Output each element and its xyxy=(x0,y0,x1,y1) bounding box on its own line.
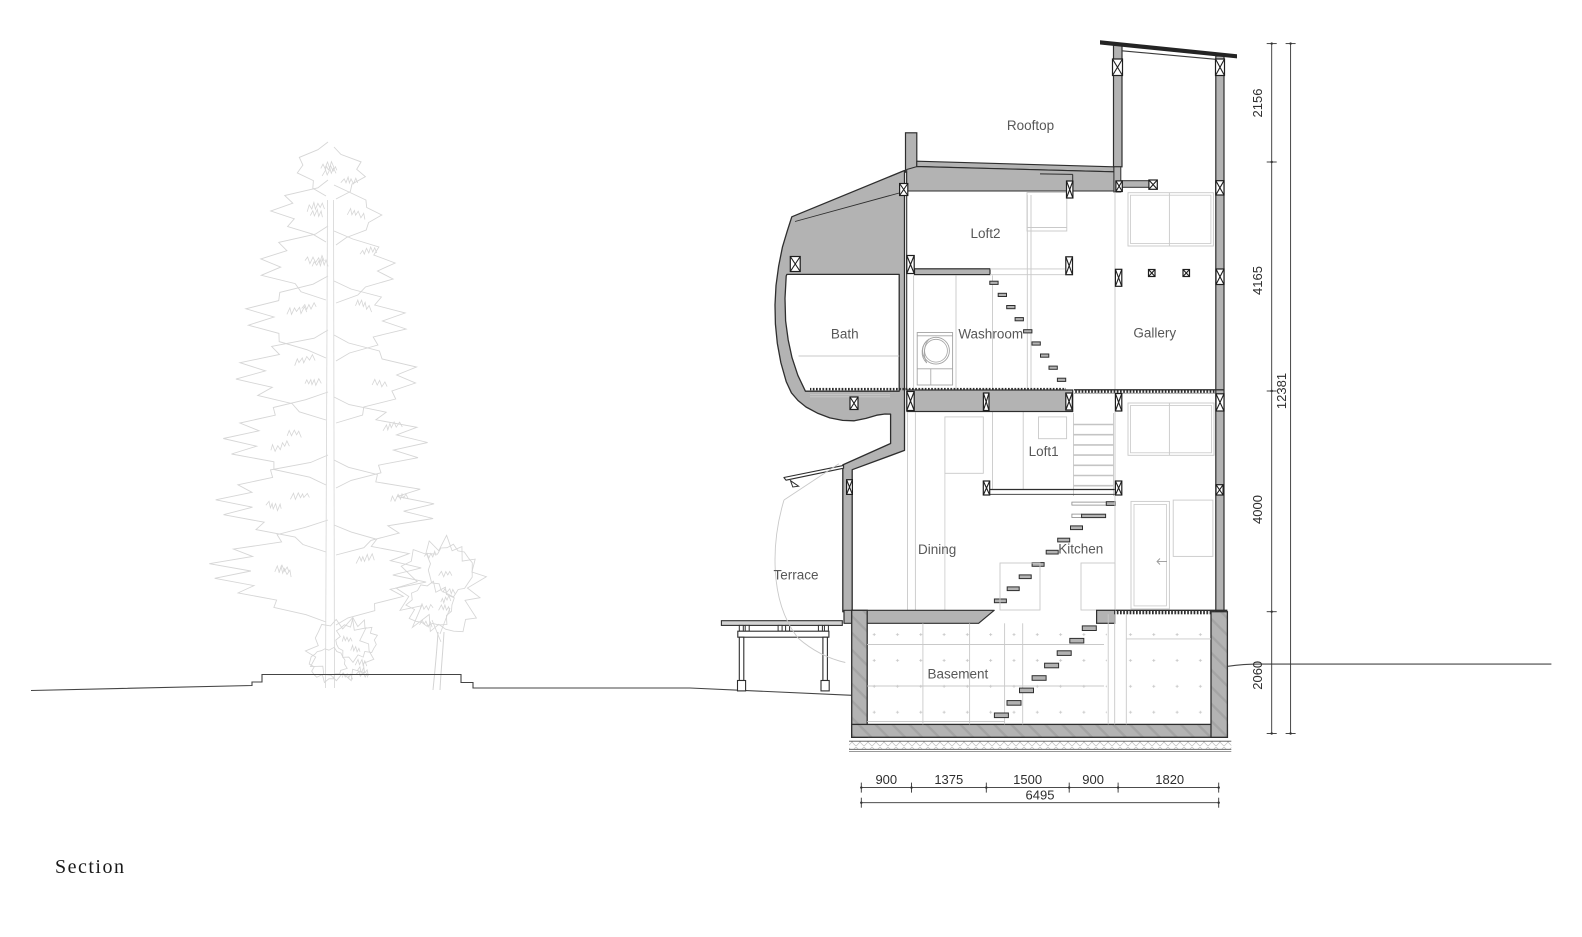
svg-text:1375: 1375 xyxy=(934,772,963,787)
svg-text:4165: 4165 xyxy=(1250,266,1265,295)
svg-text:Loft2: Loft2 xyxy=(970,226,1000,241)
svg-text:Kitchen: Kitchen xyxy=(1058,542,1103,557)
svg-text:Gallery: Gallery xyxy=(1133,325,1176,340)
svg-text:Bath: Bath xyxy=(831,327,859,342)
svg-text:900: 900 xyxy=(875,772,897,787)
svg-text:2156: 2156 xyxy=(1250,89,1265,118)
svg-text:Rooftop: Rooftop xyxy=(1007,118,1054,133)
svg-text:900: 900 xyxy=(1082,772,1104,787)
svg-text:Section: Section xyxy=(55,856,126,878)
svg-text:12381: 12381 xyxy=(1274,373,1289,409)
svg-text:6495: 6495 xyxy=(1026,788,1055,803)
svg-text:2060: 2060 xyxy=(1250,661,1265,690)
svg-text:Basement: Basement xyxy=(928,667,989,682)
svg-text:Dining: Dining xyxy=(918,542,956,557)
svg-text:Loft1: Loft1 xyxy=(1029,444,1059,459)
svg-text:4000: 4000 xyxy=(1250,495,1265,524)
svg-text:1820: 1820 xyxy=(1155,772,1184,787)
svg-text:Terrace: Terrace xyxy=(773,568,818,583)
svg-text:1500: 1500 xyxy=(1013,772,1042,787)
svg-text:Washroom: Washroom xyxy=(958,327,1023,342)
